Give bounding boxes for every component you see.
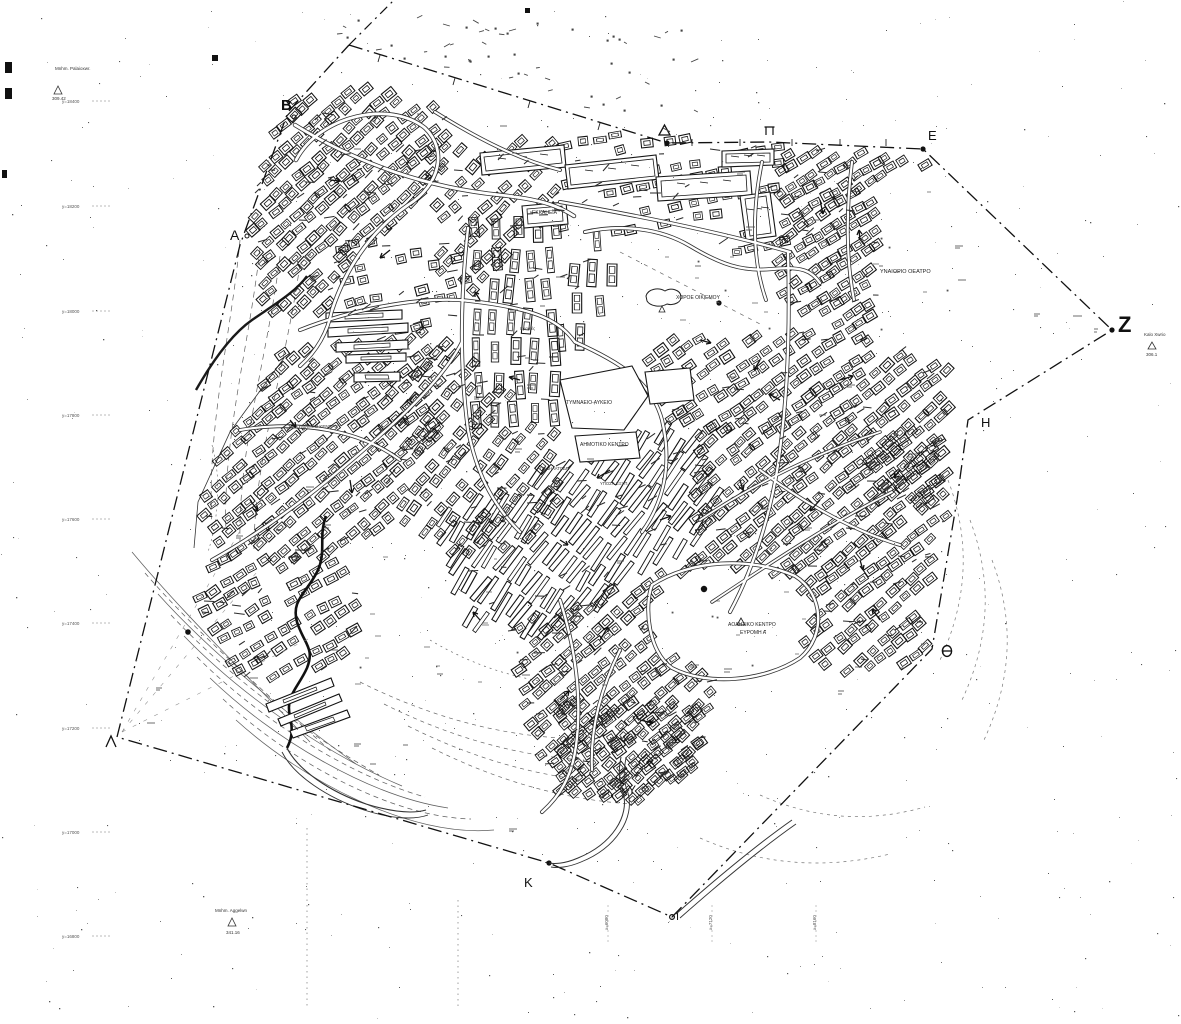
- svg-text:Z: Z: [1118, 312, 1131, 337]
- svg-text:AHMOTIKO KENTPO: AHMOTIKO KENTPO: [580, 442, 629, 448]
- svg-text:XOPOE OIKIEMOY: XOPOE OIKIEMOY: [676, 295, 721, 301]
- svg-text:EYPOMH A: EYPOMH A: [740, 630, 767, 636]
- svg-text:A: A: [230, 227, 240, 243]
- svg-text:ΥΠΟΣΤ. ΕΞΥΠ.: ΥΠΟΣΤ. ΕΞΥΠ.: [600, 481, 629, 486]
- svg-text:Kalo Xwrio: Kalo Xwrio: [1144, 332, 1166, 337]
- svg-text:AOAHTIKO KENTPO: AOAHTIKO KENTPO: [728, 622, 776, 628]
- svg-text:E: E: [928, 128, 937, 143]
- svg-text:309.42: 309.42: [52, 96, 66, 101]
- svg-text:y=17800: y=17800: [62, 413, 80, 418]
- svg-text:y=16800: y=16800: [62, 934, 80, 939]
- svg-text:306.1: 306.1: [1146, 352, 1158, 357]
- svg-text:y=17000: y=17000: [62, 830, 80, 835]
- svg-text:y=17600: y=17600: [62, 517, 80, 522]
- svg-text:y=18200: y=18200: [62, 204, 80, 209]
- svg-text:Mnhm. Aggelwn: Mnhm. Aggelwn: [215, 908, 248, 913]
- svg-text:πρασιές: πρασιές: [520, 326, 535, 331]
- svg-text:K: K: [524, 875, 533, 890]
- svg-text:B: B: [281, 97, 292, 114]
- svg-text:TYMNAEIO-AYKEIO: TYMNAEIO-AYKEIO: [566, 400, 612, 406]
- svg-text:341.16: 341.16: [226, 930, 240, 935]
- svg-text:YNAIOPIO OEATPO: YNAIOPIO OEATPO: [880, 269, 931, 275]
- svg-text:y=18000: y=18000: [62, 309, 80, 314]
- svg-text:ΠΟΔΗΛΑΤΟΔΡ.: ΠΟΔΗΛΑΤΟΔΡ.: [540, 466, 569, 471]
- svg-text:y=17400: y=17400: [62, 621, 80, 626]
- svg-text:Mnhm. Palaioxwr.: Mnhm. Palaioxwr.: [55, 66, 91, 71]
- svg-text:H: H: [981, 415, 990, 430]
- svg-text:y=17200: y=17200: [62, 726, 80, 731]
